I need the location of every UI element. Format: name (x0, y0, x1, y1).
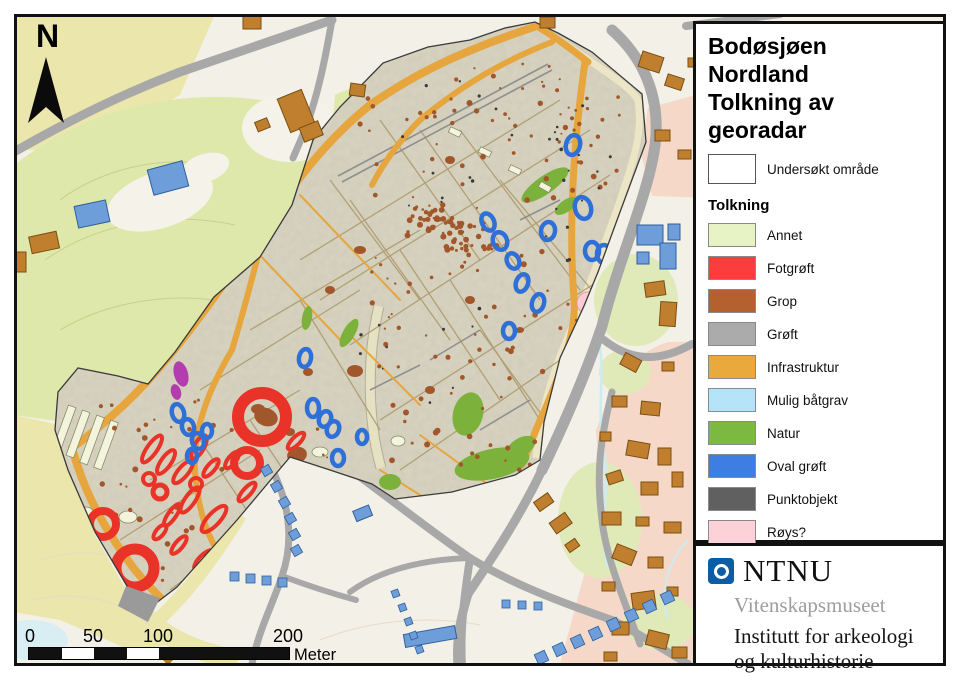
legend-swatch (708, 421, 756, 445)
legend-item: Grop (708, 289, 933, 313)
legend-item-label: Grop (767, 294, 797, 309)
map-title-line1: Bodøsjøen (708, 32, 933, 60)
legend-item-label: Røys? (767, 525, 806, 540)
legend-swatch (708, 223, 756, 247)
legend-item-label: Fotgrøft (767, 261, 814, 276)
map-title-line2: Nordland (708, 60, 933, 88)
legend-swatch (708, 256, 756, 280)
legend-item-label: Punktobjekt (767, 492, 838, 507)
legend-item: Natur (708, 421, 933, 445)
legend-swatch (708, 154, 756, 184)
legend-swatch (708, 322, 756, 346)
scale-label-200: 200 (273, 626, 303, 647)
legend-item-label: Annet (767, 228, 802, 243)
legend-swatch (708, 454, 756, 478)
scale-label-50: 50 (83, 626, 103, 647)
legend-panel: Bodøsjøen Nordland Tolkning av georadar … (693, 21, 946, 543)
legend-item-label: Natur (767, 426, 800, 441)
legend-item: Røys? (708, 520, 933, 544)
scale-unit-label: Meter (294, 646, 336, 665)
scale-label-0: 0 (25, 626, 35, 647)
legend-item-label: Mulig båtgrav (767, 393, 848, 408)
legend-swatch (708, 487, 756, 511)
legend-item: Mulig båtgrav (708, 388, 933, 412)
legend-item: Oval grøft (708, 454, 933, 478)
org-name: NTNU (743, 553, 833, 589)
north-arrow: N (24, 18, 84, 136)
legend-swatch (708, 289, 756, 313)
legend-item-label: Grøft (767, 327, 798, 342)
legend-swatch (708, 355, 756, 379)
map-sheet: { "map_title": { "line1": "Bodøsjøen", "… (0, 0, 960, 680)
credits-panel: NTNU Vitenskapsmuseet Institutt for arke… (693, 543, 946, 666)
map-title-line3: Tolkning av georadar (708, 88, 933, 144)
legend-item-label: Undersøkt område (767, 162, 879, 177)
legend-item: Annet (708, 223, 933, 247)
legend-item: Fotgrøft (708, 256, 933, 280)
scale-bar-segments (28, 647, 290, 660)
ntnu-logo-icon (708, 558, 734, 584)
museum-name: Vitenskapsmuseet (734, 593, 933, 618)
legend-item-label: Oval grøft (767, 459, 826, 474)
department-name: Institutt for arkeologi og kulturhistori… (734, 624, 933, 674)
legend-items: AnnetFotgrøftGropGrøftInfrastrukturMulig… (708, 223, 933, 577)
scale-label-100: 100 (143, 626, 173, 647)
legend-swatch (708, 388, 756, 412)
legend-section-heading: Tolkning (708, 197, 933, 214)
legend-item: Punktobjekt (708, 487, 933, 511)
legend-item: Infrastruktur (708, 355, 933, 379)
north-arrow-icon (24, 55, 68, 129)
north-label: N (36, 18, 84, 55)
scale-bar: 0 50 100 200 Meter (28, 626, 368, 666)
legend-swatch (708, 520, 756, 544)
legend-item: Grøft (708, 322, 933, 346)
legend-item-surveyed: Undersøkt område (708, 154, 933, 184)
legend-item-label: Infrastruktur (767, 360, 839, 375)
